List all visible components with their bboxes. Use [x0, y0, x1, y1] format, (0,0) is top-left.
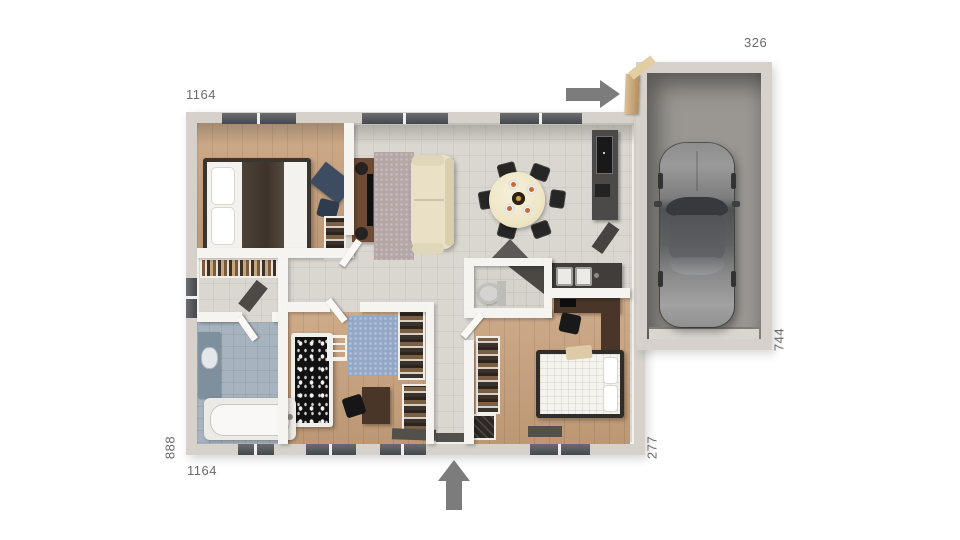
wall [197, 248, 354, 258]
plate [508, 179, 519, 190]
desk [362, 387, 390, 424]
wall [197, 312, 242, 322]
car-wheel [658, 173, 663, 189]
window [362, 113, 448, 124]
faucet [594, 273, 599, 278]
entry-arrow-right-head [600, 80, 620, 108]
living-rug [374, 152, 414, 260]
wall [474, 258, 552, 266]
wardrobe [398, 310, 425, 380]
car-windshield [666, 197, 728, 217]
entry-door [624, 74, 639, 114]
bed-pillow [211, 167, 235, 205]
entry-arrow-up-icon [446, 481, 462, 510]
entry-arrow-right-icon [566, 88, 600, 101]
wall [278, 258, 288, 444]
bedroom-rug [348, 316, 402, 376]
dimension-house-bottom: 1164 [187, 463, 217, 478]
sink-basin [201, 347, 218, 369]
bed-pillow [603, 357, 618, 384]
bed-blanket [242, 162, 284, 248]
car-mirror [654, 201, 662, 207]
plate [522, 205, 533, 216]
bed-duvet-floral [295, 337, 329, 423]
wall [464, 340, 474, 444]
monitor [560, 299, 576, 307]
wc-vanity [508, 266, 544, 294]
car-hood-crease [696, 151, 698, 191]
cabinet-door-panel [596, 136, 613, 174]
hall-closet [200, 258, 278, 278]
office-chair [558, 312, 582, 335]
dimension-house-top: 1164 [186, 87, 216, 102]
dimension-house-right: 277 [645, 433, 660, 463]
wall [344, 123, 354, 235]
wall [288, 302, 330, 312]
floorplan-canvas: 1164 326 888 1164 277 744 [0, 0, 960, 540]
window [222, 113, 296, 124]
dimension-garage-top: 326 [744, 35, 767, 50]
window [380, 444, 426, 455]
window [238, 444, 274, 455]
toilet-cistern [497, 281, 506, 306]
window [500, 113, 582, 124]
bed-pillow [603, 385, 618, 412]
kitchen-sink [575, 267, 592, 286]
bed-throw [565, 345, 592, 361]
wall [464, 258, 474, 310]
car-wheel [731, 173, 736, 189]
bowl-food [516, 196, 521, 201]
cabinet-box [595, 184, 610, 197]
sofa-backrest [445, 158, 454, 246]
dimension-house-left: 888 [163, 433, 178, 463]
wall [552, 288, 630, 298]
window [186, 278, 197, 318]
dining-chair [549, 189, 566, 209]
window [306, 444, 356, 455]
plate [526, 184, 537, 195]
wall-shadow [197, 123, 634, 145]
car [660, 143, 734, 327]
car-wheel [658, 271, 663, 287]
corridor-doormat [436, 433, 464, 442]
sofa-armrest [412, 243, 444, 254]
car-roof [669, 215, 725, 259]
speaker [355, 227, 368, 240]
bed-pillow [211, 207, 235, 245]
wall [360, 302, 426, 312]
towel-ladder [327, 335, 347, 361]
floor-mat [528, 426, 562, 437]
door-handle-dot [603, 152, 605, 154]
kitchen-sink [556, 267, 573, 286]
dimension-garage-right: 744 [772, 325, 787, 355]
garage-door [649, 327, 759, 339]
car-mirror [732, 201, 740, 207]
plate [504, 203, 515, 214]
sofa-cushion-seam [414, 199, 444, 201]
car-wheel [731, 271, 736, 287]
window [530, 444, 590, 455]
sofa-armrest [412, 155, 444, 166]
wall [426, 302, 434, 444]
tv-flatscreen [367, 174, 373, 226]
wardrobe [476, 336, 500, 414]
entry-arrow-up-head [438, 460, 470, 481]
